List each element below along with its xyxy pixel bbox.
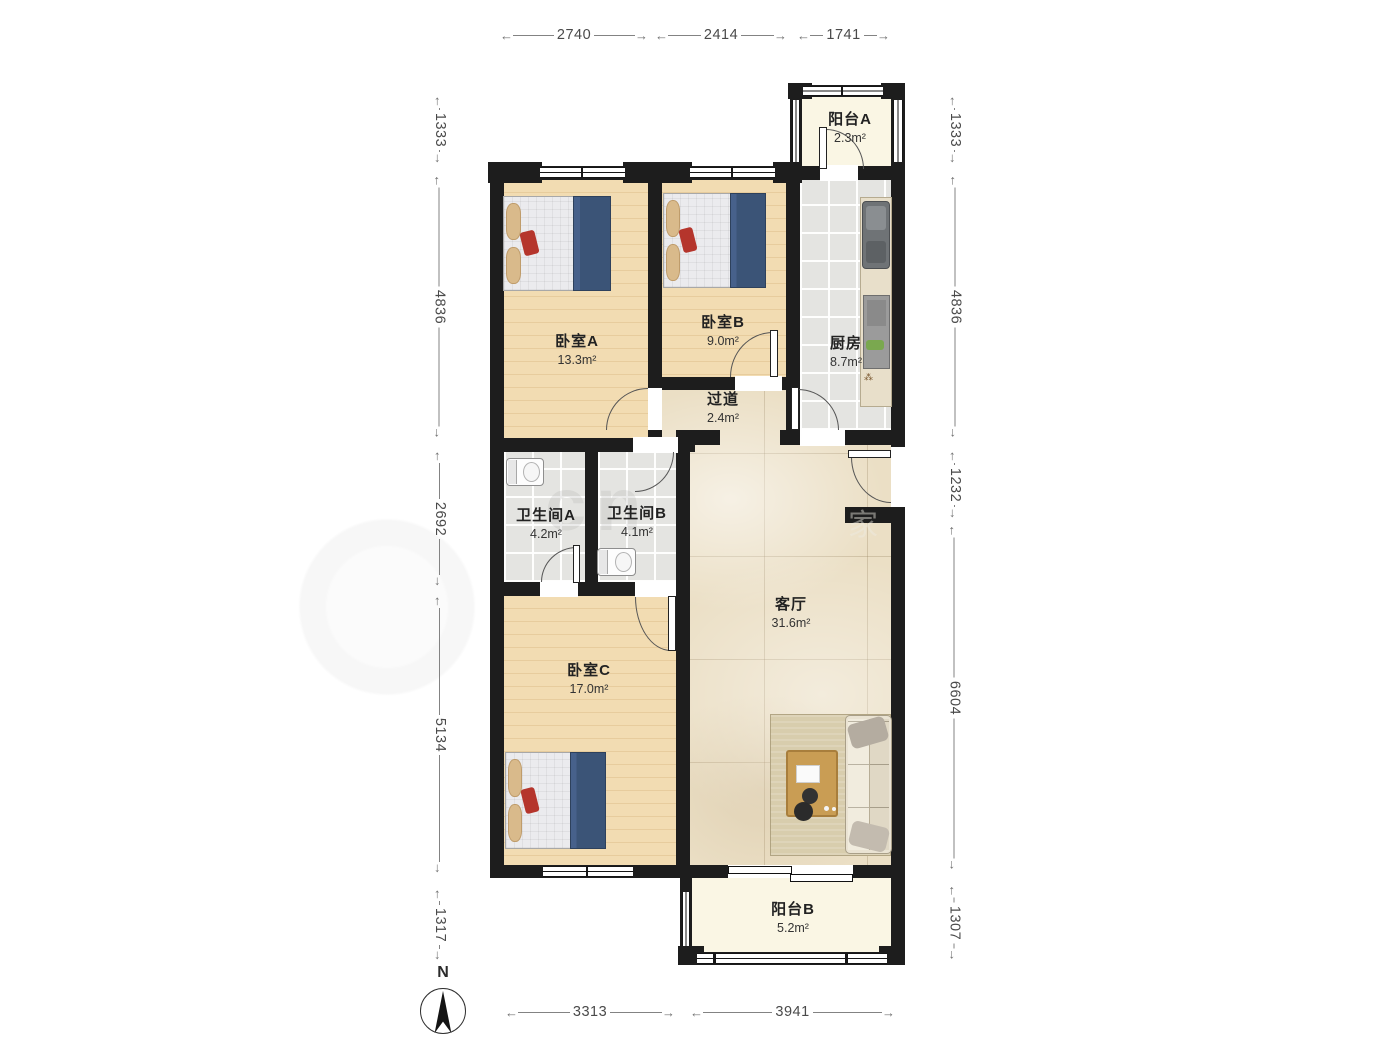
window-balcony-a-left bbox=[792, 100, 800, 162]
door-opening-bedroom-c bbox=[635, 581, 676, 597]
dimension-value: 5134 bbox=[432, 715, 448, 755]
room-name: 客厅 bbox=[772, 595, 811, 615]
wall bbox=[780, 430, 800, 445]
room-area: 2.4m² bbox=[707, 410, 739, 426]
pillow bbox=[506, 247, 521, 284]
room-area: 4.1m² bbox=[607, 524, 667, 540]
arrow-right-icon: → bbox=[434, 152, 447, 165]
window-bedroom-c bbox=[543, 866, 633, 877]
dimension-value: 4836 bbox=[948, 287, 964, 327]
blanket bbox=[730, 193, 766, 288]
dimension-value: 1232 bbox=[947, 465, 963, 505]
wall bbox=[676, 430, 690, 865]
room-name: 卧室C bbox=[567, 661, 611, 681]
room-label-bedroom-c: 卧室C 17.0m² bbox=[567, 661, 611, 697]
arrow-left-icon: ← bbox=[500, 29, 513, 42]
cooktop-inner bbox=[867, 300, 886, 326]
pillow bbox=[666, 244, 680, 281]
wall bbox=[845, 430, 905, 445]
room-name: 厨房 bbox=[830, 334, 862, 354]
door-leaf-kitchen bbox=[791, 387, 799, 430]
dimension-bottom-1: ← 3313 → bbox=[505, 1002, 675, 1022]
table-decor bbox=[794, 802, 813, 821]
arrow-left-icon: ← bbox=[434, 95, 447, 108]
wall-pillar bbox=[488, 162, 542, 183]
table-decor bbox=[824, 806, 829, 811]
door-leaf-balcony-a bbox=[819, 127, 827, 169]
room-name: 卫生间A bbox=[516, 506, 576, 526]
north-label: N bbox=[420, 964, 466, 982]
bed-bedroom-a bbox=[503, 196, 611, 291]
window-balcony-a-top bbox=[803, 86, 883, 96]
door-opening-entrance bbox=[891, 447, 905, 507]
room-name: 卧室B bbox=[701, 313, 745, 333]
toilet-bowl bbox=[615, 552, 632, 572]
floor-plan: cn 家 bbox=[0, 0, 1400, 1050]
table-decor bbox=[832, 807, 836, 811]
door-leaf-bedroom-b bbox=[770, 330, 778, 377]
room-label-bedroom-a: 卧室A 13.3m² bbox=[555, 332, 599, 368]
arrow-right-icon: → bbox=[882, 1006, 895, 1019]
room-name: 阳台B bbox=[771, 900, 815, 920]
window-mullion bbox=[713, 953, 716, 964]
dimension-top-3: ← 1741 → bbox=[797, 25, 890, 45]
dimension-value: 3941 bbox=[772, 1004, 812, 1020]
door-leaf-bedroom-c bbox=[668, 596, 676, 651]
arrow-right-icon: → bbox=[949, 427, 962, 440]
dimension-left-2: ← 4836 → bbox=[430, 175, 450, 440]
door-opening-bedroom-a bbox=[648, 388, 662, 430]
dimension-value: 1333 bbox=[432, 110, 448, 150]
dimension-right-4: ← 6604 → bbox=[945, 525, 965, 872]
dimension-top-1: ← 2740 → bbox=[500, 25, 648, 45]
door-leaf-entrance bbox=[848, 450, 891, 458]
arrow-left-icon: ← bbox=[434, 450, 447, 463]
room-label-bathroom-b: 卫生间B 4.1m² bbox=[607, 504, 667, 540]
blanket bbox=[573, 196, 611, 291]
dimension-value: 1741 bbox=[823, 27, 863, 43]
arrow-left-icon: ← bbox=[505, 1006, 518, 1019]
door-opening-bathroom-b bbox=[633, 437, 678, 453]
room-name: 卫生间B bbox=[607, 504, 667, 524]
sliding-door-panel bbox=[790, 874, 853, 882]
watermark-blob bbox=[282, 502, 492, 712]
red-pillow bbox=[520, 787, 539, 814]
wall-pillar bbox=[773, 162, 802, 183]
arrow-left-icon: ← bbox=[690, 1006, 703, 1019]
wall bbox=[490, 438, 633, 452]
room-name: 阳台A bbox=[828, 110, 872, 130]
dimension-value: 1307 bbox=[947, 903, 963, 943]
wall-pillar bbox=[623, 162, 692, 183]
dimension-value: 6604 bbox=[947, 678, 963, 718]
dimension-left-1: ← 1333 → bbox=[430, 95, 450, 165]
dimension-left-4: ← 5134 → bbox=[430, 595, 450, 875]
room-area: 8.7m² bbox=[830, 354, 862, 370]
dimension-value: 1317 bbox=[432, 905, 448, 945]
room-area: 2.3m² bbox=[828, 130, 872, 146]
dimension-bottom-2: ← 3941 → bbox=[690, 1002, 895, 1022]
room-name: 过道 bbox=[707, 390, 739, 410]
sink-basin bbox=[866, 206, 886, 230]
wall bbox=[490, 166, 504, 878]
room-label-balcony-b: 阳台B 5.2m² bbox=[771, 900, 815, 936]
window-mullion bbox=[586, 866, 588, 877]
dimension-right-3: ← 1232 → bbox=[945, 450, 965, 520]
dimension-left-5: ← 1317 → bbox=[430, 888, 450, 962]
room-area: 17.0m² bbox=[567, 681, 611, 697]
wall bbox=[662, 377, 735, 390]
red-pillow bbox=[678, 227, 698, 254]
dimension-value: 4836 bbox=[432, 287, 448, 327]
window-mullion bbox=[845, 953, 848, 964]
arrow-left-icon: ← bbox=[949, 95, 962, 108]
sink-basin bbox=[866, 241, 886, 263]
arrow-right-icon: → bbox=[662, 1006, 675, 1019]
counter-decor: ⁂ bbox=[864, 372, 874, 383]
dimension-value: 2740 bbox=[554, 27, 594, 43]
wall bbox=[690, 430, 720, 445]
arrow-right-icon: → bbox=[433, 427, 446, 440]
arrow-left-icon: ← bbox=[433, 175, 446, 188]
door-opening-kitchen bbox=[800, 429, 845, 446]
arrow-left-icon: ← bbox=[434, 888, 447, 901]
door-leaf-bathroom-a bbox=[573, 545, 580, 583]
room-label-hallway: 过道 2.4m² bbox=[707, 390, 739, 426]
arrow-right-icon: → bbox=[434, 862, 447, 875]
dimension-right-2: ← 4836 → bbox=[946, 175, 966, 440]
wall-pillar bbox=[881, 83, 905, 99]
arrow-right-icon: → bbox=[948, 859, 961, 872]
door-opening-bathroom-a bbox=[540, 581, 578, 597]
bed-bedroom-c bbox=[505, 752, 606, 849]
toilet-bowl bbox=[523, 462, 540, 482]
arrow-left-icon: ← bbox=[797, 29, 810, 42]
bed-bedroom-b bbox=[663, 193, 766, 288]
window-mullion bbox=[841, 86, 843, 96]
tray bbox=[796, 765, 820, 783]
arrow-left-icon: ← bbox=[655, 29, 668, 42]
room-label-kitchen: 厨房 8.7m² bbox=[830, 334, 862, 370]
toilet-tank bbox=[599, 550, 608, 574]
sliding-door-panel bbox=[728, 866, 792, 874]
plant bbox=[866, 340, 884, 350]
watermark-glyph: 家 bbox=[848, 500, 878, 544]
room-area: 31.6m² bbox=[772, 615, 811, 631]
room-area: 13.3m² bbox=[555, 352, 599, 368]
dimension-value: 1333 bbox=[947, 110, 963, 150]
room-label-bathroom-a: 卫生间A 4.2m² bbox=[516, 506, 576, 542]
wall bbox=[490, 582, 540, 596]
window-mullion bbox=[731, 167, 733, 178]
window-balcony-b-left bbox=[682, 892, 690, 946]
arrow-left-icon: ← bbox=[949, 175, 962, 188]
arrow-right-icon: → bbox=[949, 507, 962, 520]
arrow-right-icon: → bbox=[948, 949, 961, 962]
wall bbox=[853, 865, 905, 878]
arrow-left-icon: ← bbox=[949, 450, 962, 463]
arrow-right-icon: → bbox=[774, 29, 787, 42]
kitchen-sink bbox=[862, 201, 890, 269]
room-label-bedroom-b: 卧室B 9.0m² bbox=[701, 313, 745, 349]
room-area: 9.0m² bbox=[701, 333, 745, 349]
wall bbox=[858, 166, 905, 180]
arrow-left-icon: ← bbox=[948, 525, 961, 538]
arrow-left-icon: ← bbox=[434, 595, 447, 608]
dimension-value: 3313 bbox=[570, 1004, 610, 1020]
dimension-right-1: ← 1333 → bbox=[945, 95, 965, 165]
pillow bbox=[508, 804, 522, 842]
door-opening-bedroom-b bbox=[735, 376, 782, 391]
arrow-right-icon: → bbox=[434, 949, 447, 962]
arrow-right-icon: → bbox=[949, 152, 962, 165]
dimension-value: 2414 bbox=[701, 27, 741, 43]
dimension-top-2: ← 2414 → bbox=[655, 25, 787, 45]
arrow-right-icon: → bbox=[635, 29, 648, 42]
dimension-value: 2692 bbox=[432, 499, 448, 539]
toilet-bathroom-a bbox=[506, 458, 544, 486]
toilet-bathroom-b bbox=[597, 548, 636, 576]
kitchen-cooktop bbox=[863, 295, 890, 369]
room-label-balcony-a: 阳台A 2.3m² bbox=[828, 110, 872, 146]
dimension-right-5: ← 1307 → bbox=[945, 885, 965, 962]
wall bbox=[648, 180, 662, 388]
wall bbox=[578, 582, 635, 596]
wall bbox=[891, 507, 905, 965]
toilet-tank bbox=[508, 460, 517, 484]
room-name: 卧室A bbox=[555, 332, 599, 352]
wall bbox=[676, 865, 728, 878]
room-area: 5.2m² bbox=[771, 920, 815, 936]
room-area: 4.2m² bbox=[516, 526, 576, 542]
window-mullion bbox=[581, 167, 583, 178]
red-pillow bbox=[519, 230, 539, 257]
coffee-table bbox=[786, 750, 838, 817]
window-balcony-b-bottom bbox=[697, 953, 887, 964]
sofa bbox=[845, 715, 892, 854]
room-label-living-room: 客厅 31.6m² bbox=[772, 595, 811, 631]
arrow-left-icon: ← bbox=[948, 885, 961, 898]
dimension-left-3: ← 2692 → bbox=[430, 450, 450, 588]
window-balcony-a-right bbox=[893, 100, 903, 162]
arrow-right-icon: → bbox=[434, 575, 447, 588]
arrow-right-icon: → bbox=[877, 29, 890, 42]
blanket bbox=[570, 752, 606, 849]
north-compass: N bbox=[420, 968, 466, 1038]
